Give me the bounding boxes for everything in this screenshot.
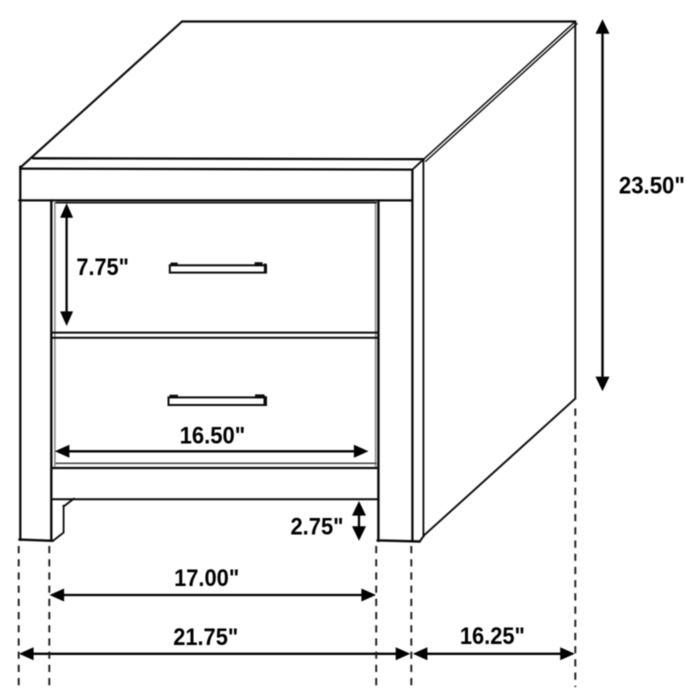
svg-text:2.75": 2.75" [291, 513, 344, 540]
svg-text:7.75": 7.75" [76, 254, 128, 281]
svg-text:21.75": 21.75" [173, 624, 238, 651]
svg-text:23.50": 23.50" [619, 173, 685, 200]
svg-text:17.00": 17.00" [174, 565, 239, 592]
svg-text:16.25": 16.25" [460, 623, 525, 650]
svg-text:16.50": 16.50" [180, 422, 246, 449]
